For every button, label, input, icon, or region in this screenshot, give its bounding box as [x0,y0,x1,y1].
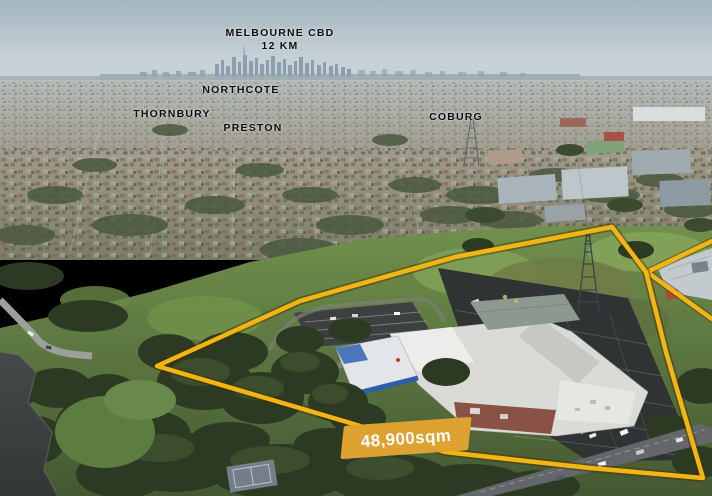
label-coburg: COBURG [429,111,483,123]
sky [0,0,712,82]
label-preston: PRESTON [224,122,283,134]
label-northcote: NORTHCOTE [202,84,279,96]
label-thornbury: THORNBURY [133,108,211,120]
label-melbourne-cbd-distance: 12 KM [262,40,299,52]
label-melbourne-cbd: MELBOURNE CBD [226,27,335,39]
aerial-photo: 48,900sqm MELBOURNE CBD 12 KM NORTHCOTE … [0,0,712,496]
